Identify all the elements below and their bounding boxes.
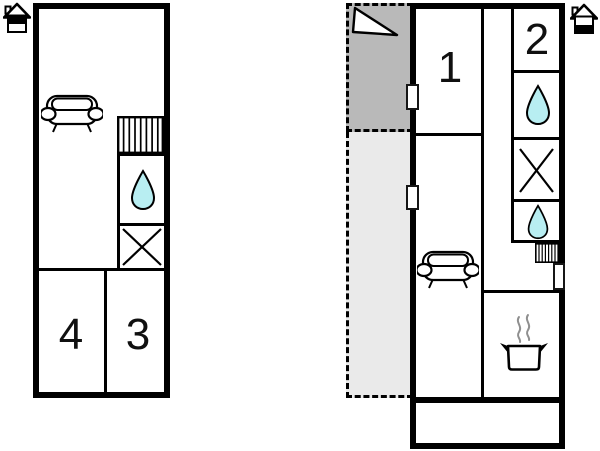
wall-bath-top bbox=[117, 153, 164, 156]
cooking-pot-icon bbox=[498, 312, 550, 374]
wall-kitchen-top bbox=[484, 290, 559, 293]
house-lower-floor-icon bbox=[570, 3, 598, 35]
door-marker bbox=[406, 185, 419, 210]
floorplan-canvas: 4 3 1 2 bbox=[0, 0, 600, 451]
room-3-label: 3 bbox=[126, 313, 150, 357]
sofa-icon bbox=[41, 89, 103, 133]
wall-xroom-bottom bbox=[514, 199, 559, 202]
window-x-icon bbox=[514, 142, 559, 199]
north-arrow-icon bbox=[351, 5, 400, 39]
room-1-label: 1 bbox=[438, 46, 462, 90]
wall-room4-room3 bbox=[104, 271, 107, 392]
sofa-icon bbox=[417, 245, 479, 289]
wall-room1-bottom bbox=[416, 133, 481, 136]
wall-rooms-top bbox=[39, 268, 164, 271]
house-upper-floor-icon bbox=[3, 2, 31, 34]
door-marker bbox=[553, 263, 565, 290]
wall-room2-bottom bbox=[514, 70, 559, 73]
window-x-icon bbox=[120, 226, 164, 268]
water-drop-icon bbox=[526, 204, 550, 240]
water-drop-icon bbox=[130, 169, 156, 211]
room-2-label: 2 bbox=[525, 18, 549, 62]
stairs-icon bbox=[535, 243, 559, 263]
room-4-label: 4 bbox=[59, 313, 83, 357]
wall-bath1-bottom bbox=[514, 137, 559, 140]
water-drop-icon bbox=[525, 84, 551, 126]
door-marker bbox=[406, 84, 419, 110]
stairs-icon bbox=[117, 116, 164, 154]
terrace-area-light bbox=[346, 132, 413, 398]
wall-floor-bottom bbox=[410, 397, 565, 403]
wall-corridor-left bbox=[481, 9, 484, 397]
wall-corridor-right bbox=[511, 9, 514, 243]
